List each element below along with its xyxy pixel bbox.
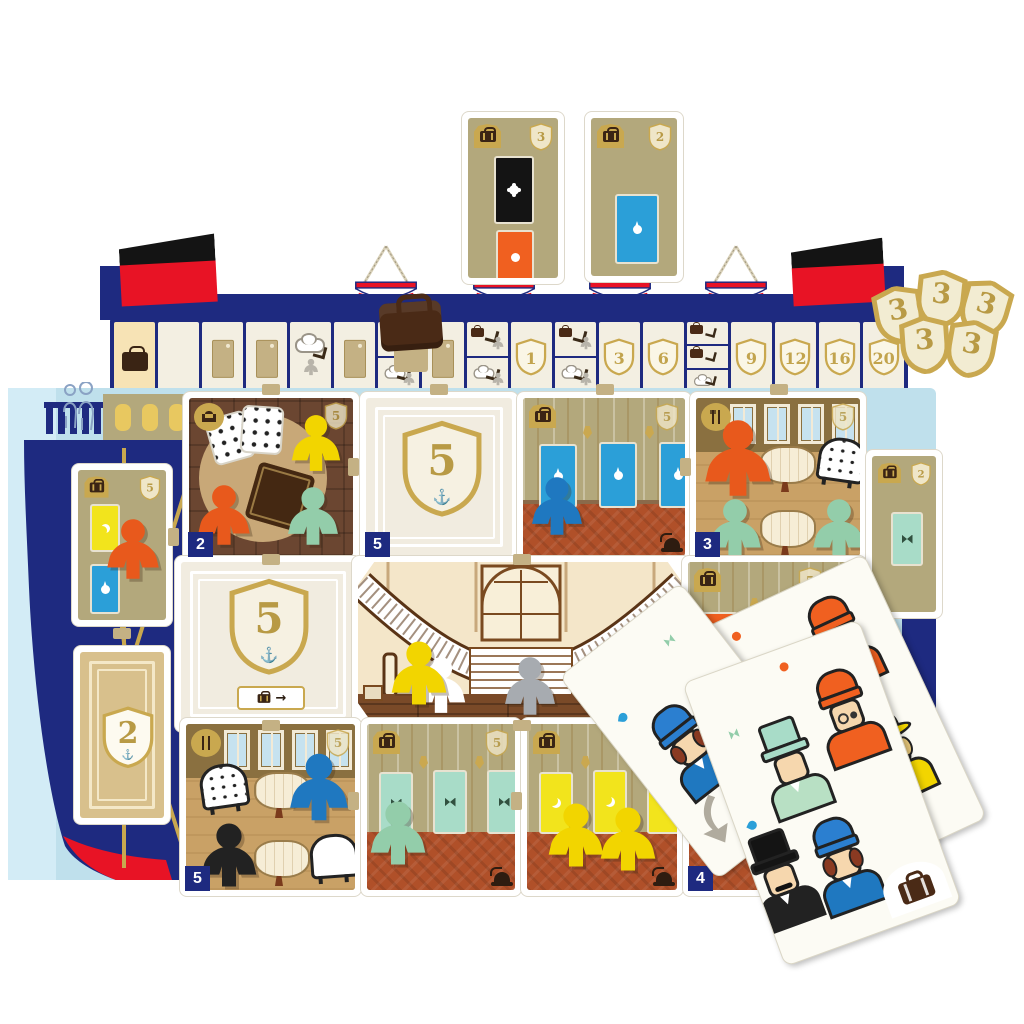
hull-score-tile: 2 ⚓: [74, 646, 170, 824]
shield-token-pile: 3 3 3 3 3: [872, 268, 1022, 378]
points-badge: 5: [139, 475, 161, 500]
lounge-tile: 5 2: [183, 392, 359, 562]
window: [258, 730, 284, 770]
deck-bar: [100, 294, 908, 320]
suitcase-move-pill: →: [237, 686, 305, 710]
blue-drop-icon: [618, 712, 628, 722]
cabin-interior: 3: [468, 118, 558, 278]
orange-meeple: [100, 516, 166, 582]
black-door: [494, 156, 534, 224]
score-shield: 5 ⚓: [227, 578, 311, 678]
blue-door: [599, 442, 637, 508]
tile-connector-tab: [513, 720, 531, 731]
points-badge: 2: [911, 462, 931, 486]
luggage-crest-icon: [878, 463, 901, 483]
dice: [239, 405, 284, 456]
bow-symbol: [902, 535, 913, 544]
yellow-meeple: [593, 804, 663, 874]
track-cell-exchange: [467, 322, 508, 392]
anchor-score-tile-mid: 5 ⚓ →: [175, 556, 361, 732]
arrow-glyph: →: [276, 691, 287, 706]
luggage-crest-icon: [529, 404, 556, 428]
track-cell-exchange-triple: [687, 322, 728, 392]
orange-door: [496, 230, 534, 278]
tile-connector-tab: [262, 554, 280, 565]
tile-corner-number: 3: [695, 532, 720, 557]
hull-cabin-tile: 5: [72, 464, 172, 626]
tile-corner-number: 2: [188, 532, 213, 557]
tile-connector-tab: [262, 384, 280, 395]
points-badge: 5: [831, 403, 855, 431]
blue-drop-icon: [746, 819, 758, 831]
tile-connector-tab: [513, 554, 531, 565]
track-cell-door: [246, 322, 287, 392]
top-cabin-tile-1: 3: [462, 112, 564, 284]
score-shield: 2 ⚓: [101, 706, 155, 770]
top-cabin-tile-2: 2: [585, 112, 683, 282]
anchor-score-tile-top: 5 ⚓ 5: [360, 392, 518, 562]
points-badge: 5: [655, 403, 679, 431]
yellow-meeple: [384, 638, 454, 708]
blue-door: [615, 194, 659, 264]
green-bow-icon: [663, 634, 676, 647]
tile-connector-tab: [348, 458, 359, 476]
drop-symbol: [101, 585, 110, 594]
dining-interior: 5: [696, 398, 860, 556]
track-cell-door: [202, 322, 243, 392]
tile-connector-tab: [596, 384, 614, 395]
cabin-interior: 2: [591, 118, 677, 276]
cabin-interior: 2: [872, 456, 936, 612]
dining-tile-top: 5 3: [690, 392, 866, 562]
mint-door: [891, 512, 923, 566]
service-bell-icon: [489, 866, 515, 890]
track-cell-shield-1: 1: [511, 322, 552, 392]
tile-connector-tab: [348, 792, 359, 810]
points-badge: 2: [648, 123, 672, 151]
points-badge: 5: [485, 729, 509, 757]
luggage-crest-icon: [694, 568, 721, 592]
track-cell-smoke: [290, 322, 331, 392]
tile-connector-tab: [430, 384, 448, 395]
funnel-body: [120, 261, 218, 307]
tile-corner-number: 5: [365, 532, 390, 557]
deckhouse-window: [115, 404, 131, 431]
mint-meeple: [281, 484, 345, 548]
drop-symbol: [633, 225, 642, 234]
white-chair: [309, 832, 355, 879]
yellow-meeple: [285, 412, 347, 474]
funnel-left: [118, 234, 217, 307]
blue-meeple: [282, 750, 355, 824]
score-tile-face: 5 ⚓ →: [181, 562, 355, 726]
service-bell-icon: [659, 532, 685, 556]
track-cell-shield-3: 3: [599, 322, 640, 392]
dining-tile-bottom: 5 5: [180, 718, 361, 896]
score-shield: 5 ⚓: [400, 420, 484, 520]
mint-cabin-tile: 5: [361, 718, 521, 896]
ring-symbol: [511, 253, 520, 262]
bow-symbol: [499, 798, 510, 807]
suitcase-icon: [257, 694, 270, 703]
score-track: 1 3 6 9: [110, 318, 908, 396]
track-cell-door: [334, 322, 375, 392]
lounge-interior: 5: [189, 398, 353, 556]
tile-connector-tab: [113, 628, 131, 639]
mint-door: [433, 770, 467, 834]
blue-cabin-tile: 5: [517, 392, 691, 562]
tile-connector-tab: [680, 458, 691, 476]
dining-interior: 5: [186, 724, 355, 890]
window: [798, 404, 824, 444]
mint-meeple: [367, 798, 433, 868]
orange-meeple-large: [696, 416, 780, 500]
board-game-scene: 1 3 6 9: [0, 0, 1024, 1024]
blue-meeple: [525, 474, 589, 538]
cutlery-crest-icon: [191, 729, 221, 757]
service-bell-icon: [651, 866, 677, 890]
green-bow-icon: [728, 728, 740, 740]
tile-corner-number: 5: [185, 866, 210, 891]
track-cell-exchange: [555, 322, 596, 392]
tile-connector-tab: [262, 720, 280, 731]
mint-meeple: [806, 496, 860, 556]
track-cell-shield-6: 6: [643, 322, 684, 392]
track-cell-empty: [158, 322, 199, 392]
tile-connector-tab: [511, 792, 522, 810]
luggage-crest-icon: [373, 730, 400, 754]
track-cell-shield-16: 16: [819, 322, 860, 392]
deckhouse-window: [142, 404, 158, 431]
track-cell-shield-9: 9: [731, 322, 772, 392]
bow-symbol: [445, 798, 456, 807]
tile-connector-tab: [770, 384, 788, 395]
drop-symbol: [614, 471, 623, 480]
track-cell-shield-12: 12: [775, 322, 816, 392]
gray-meeple: [498, 654, 562, 718]
suitcase-piece: [380, 294, 446, 372]
flower-symbol: [509, 185, 519, 195]
luggage-crest-icon: [474, 124, 501, 148]
points-badge: 3: [529, 123, 553, 151]
track-cell-suitcase: [114, 322, 155, 392]
shield-token: 3: [941, 316, 1000, 382]
luggage-crest-icon: [84, 476, 108, 498]
score-tile-face: 2 ⚓: [80, 652, 164, 818]
luggage-crest-icon: [597, 124, 624, 148]
armchair-crest-icon: [194, 403, 224, 431]
orange-dot-icon: [778, 661, 790, 673]
orange-dot-icon: [730, 630, 742, 642]
luggage-crest-icon: [533, 730, 560, 754]
tile-connector-tab: [168, 528, 179, 546]
